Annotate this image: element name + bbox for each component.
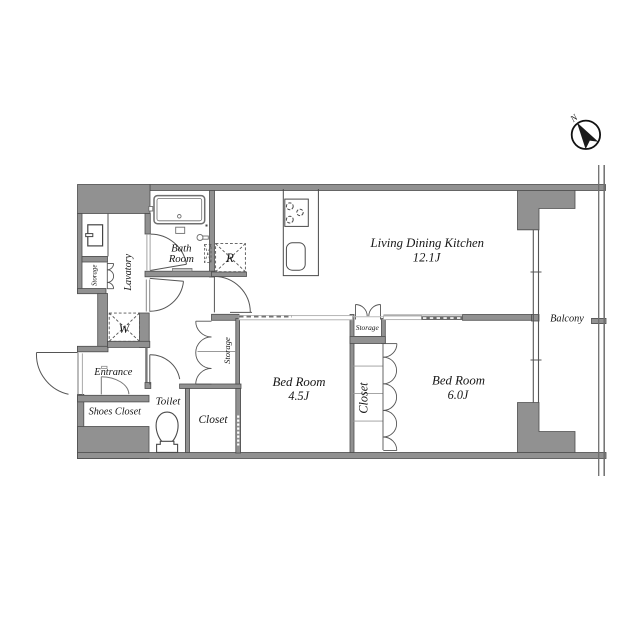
svg-text:Closet: Closet (357, 382, 371, 414)
svg-text:Room: Room (168, 253, 194, 265)
svg-text:Living Dining Kitchen: Living Dining Kitchen (370, 236, 484, 250)
svg-text:Shoes Closet: Shoes Closet (89, 407, 143, 418)
svg-text:Storage: Storage (91, 265, 98, 286)
svg-text:Bed Room: Bed Room (432, 373, 485, 387)
svg-text:12.1J: 12.1J (413, 251, 442, 265)
svg-text:Lavatory: Lavatory (123, 253, 134, 291)
svg-text:Storage: Storage (222, 337, 232, 364)
svg-text:6.0J: 6.0J (448, 388, 469, 402)
svg-text:Toilet: Toilet (156, 396, 182, 408)
svg-text:Bed Room: Bed Room (273, 375, 326, 389)
svg-text:Storage: Storage (356, 323, 380, 332)
svg-text:Closet: Closet (198, 414, 228, 426)
svg-text:R: R (225, 251, 234, 265)
svg-text:Entrance: Entrance (93, 367, 132, 378)
svg-text:Balcony: Balcony (550, 313, 584, 324)
svg-text:4.5J: 4.5J (288, 389, 309, 403)
svg-text:W: W (119, 322, 131, 336)
